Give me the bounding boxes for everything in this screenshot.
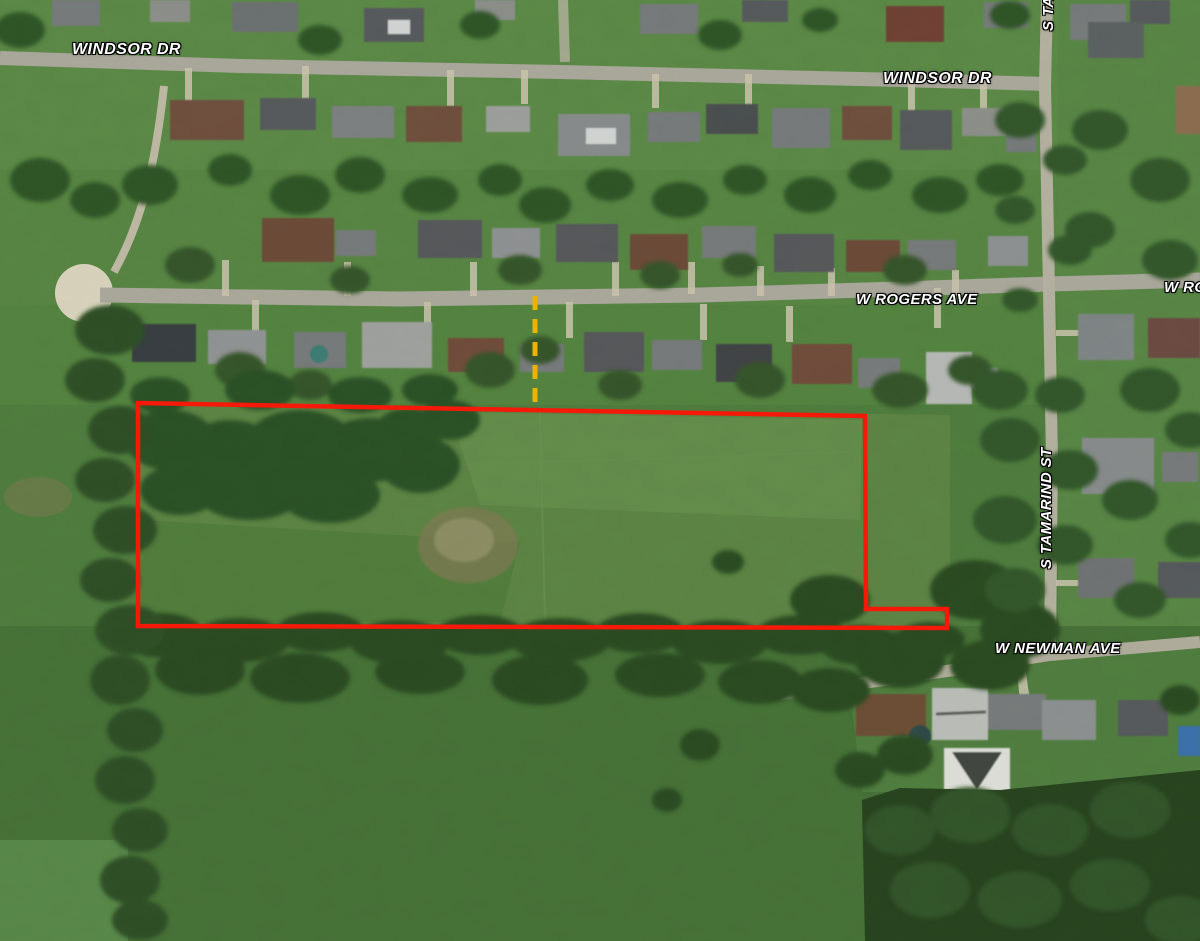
street-label-windsor-dr-right: WINDSOR DR [883,71,992,88]
street-label-w-newman-ave: W NEWMAN AVE [995,641,1121,657]
satellite-imagery [0,0,1200,941]
aerial-map: WINDSOR DR WINDSOR DR W ROGERS AVE W ROG… [0,0,1200,941]
street-label-w-rogers-ave-right: W ROGERS AVE [1164,280,1200,296]
street-label-s-tamarind-st-top: S TAMARIND ST [1041,0,1057,31]
street-label-windsor-dr-left: WINDSOR DR [72,42,181,59]
street-label-s-tamarind-st: S TAMARIND ST [1039,447,1055,569]
photo-grain-overlay [0,0,1200,941]
street-label-w-rogers-ave: W ROGERS AVE [856,292,977,308]
